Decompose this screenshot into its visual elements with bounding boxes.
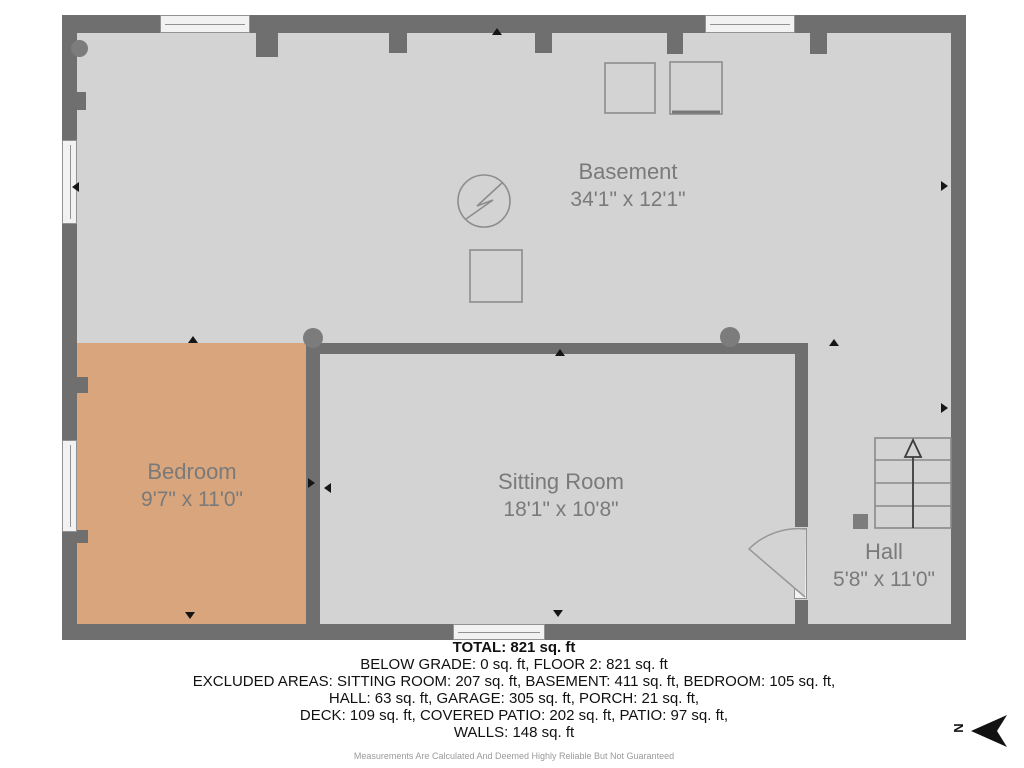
disclaimer-text: Measurements Are Calculated And Deemed H… xyxy=(62,748,966,765)
pillar-stub xyxy=(74,92,86,110)
floor-plan-page: N Basement 34'1" x 12'1" Bedroom 9'7" x … xyxy=(0,0,1024,768)
dimension-arrow xyxy=(188,336,198,343)
dimension-arrow xyxy=(324,483,331,493)
wall-sitting-right-upper xyxy=(795,343,808,527)
pillar-stub xyxy=(853,514,868,529)
column-dot xyxy=(303,328,323,348)
dimension-arrow xyxy=(941,403,948,413)
room-name: Bedroom xyxy=(72,458,312,486)
pillar-stub xyxy=(667,33,683,54)
room-dims: 34'1" x 12'1" xyxy=(478,186,778,214)
sitting-room-label: Sitting Room 18'1" x 10'8" xyxy=(411,468,711,524)
window xyxy=(705,15,795,33)
room-name: Hall xyxy=(784,538,984,566)
pillar-stub xyxy=(72,377,88,393)
column-dot xyxy=(720,327,740,347)
summary-line: EXCLUDED AREAS: SITTING ROOM: 207 sq. ft… xyxy=(62,673,966,690)
pillar-stub xyxy=(810,33,827,54)
pillar-stub xyxy=(389,33,407,53)
total-area-text: TOTAL: 821 sq. ft xyxy=(62,639,966,656)
room-dims: 9'7" x 11'0" xyxy=(72,486,312,514)
hall-label: Hall 5'8" x 11'0" xyxy=(784,538,984,594)
dimension-arrow xyxy=(72,182,79,192)
area-summary: TOTAL: 821 sq. ft BELOW GRADE: 0 sq. ft,… xyxy=(62,639,966,765)
dimension-arrow xyxy=(941,181,948,191)
pillar-stub xyxy=(256,33,278,57)
dimension-arrow xyxy=(555,349,565,356)
pillar-stub xyxy=(535,33,552,53)
summary-line: WALLS: 148 sq. ft xyxy=(62,724,966,741)
dimension-arrow xyxy=(553,610,563,617)
room-dims: 5'8" x 11'0" xyxy=(784,566,984,594)
dimension-arrow xyxy=(185,612,195,619)
dimension-arrow xyxy=(492,28,502,35)
summary-line: DECK: 109 sq. ft, COVERED PATIO: 202 sq.… xyxy=(62,707,966,724)
dimension-arrow xyxy=(829,339,839,346)
room-name: Sitting Room xyxy=(411,468,711,496)
window xyxy=(453,624,545,640)
wall-sitting-right-lower xyxy=(795,600,808,624)
summary-line: HALL: 63 sq. ft, GARAGE: 305 sq. ft, POR… xyxy=(62,690,966,707)
bedroom-label: Bedroom 9'7" x 11'0" xyxy=(72,458,312,514)
basement-label: Basement 34'1" x 12'1" xyxy=(478,158,778,214)
room-name: Basement xyxy=(478,158,778,186)
window xyxy=(160,15,250,33)
summary-line: BELOW GRADE: 0 sq. ft, FLOOR 2: 821 sq. … xyxy=(62,656,966,673)
room-dims: 18'1" x 10'8" xyxy=(411,496,711,524)
column-dot xyxy=(71,40,88,57)
